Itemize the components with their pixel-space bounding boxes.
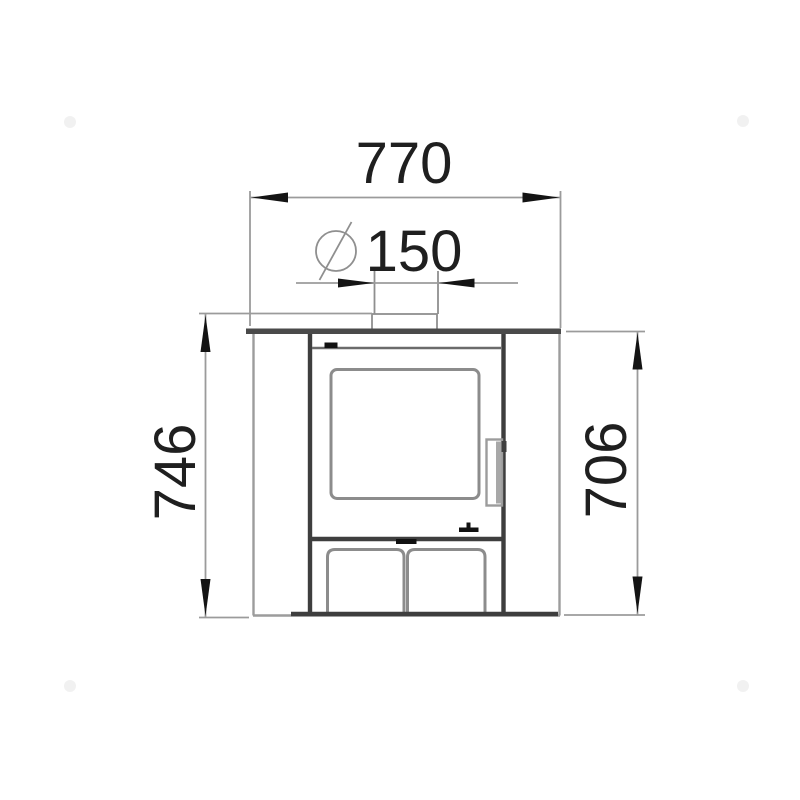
door-latch-stub: [467, 523, 471, 529]
dimension-flue-diameter: 150: [296, 219, 518, 314]
scan-artifact: [737, 680, 749, 692]
arrowhead-up-icon: [633, 333, 643, 370]
door-glass-window: [331, 370, 479, 499]
top-plate: [246, 329, 561, 335]
air-control-lever: [325, 343, 338, 349]
base-panel-right: [408, 550, 486, 614]
dimension-label-746: 746: [143, 424, 208, 521]
drawing-canvas: 770 150 746 706: [0, 0, 800, 800]
door-bottom-latch: [396, 539, 417, 544]
dimension-label-706: 706: [574, 422, 639, 519]
flue-collar: [372, 314, 437, 330]
dimension-label-150: 150: [366, 219, 463, 284]
diameter-icon: [316, 222, 356, 280]
stove-body: [246, 314, 561, 616]
arrowhead-up-icon: [201, 315, 211, 352]
dimension-body-height: 706: [564, 332, 645, 616]
door-handle-shade: [496, 442, 502, 504]
arrowhead-down-icon: [633, 577, 643, 614]
scan-artifact: [64, 680, 76, 692]
base-panel-left: [328, 550, 405, 614]
door-latch-mark: [459, 528, 479, 533]
door-handle-mount: [502, 441, 507, 452]
arrowhead-right-icon: [523, 193, 560, 203]
stove-dimension-drawing: 770 150 746 706: [0, 0, 800, 800]
dimension-label-770: 770: [356, 131, 453, 196]
scan-artifact: [64, 116, 76, 128]
scan-artifact: [737, 115, 749, 127]
arrowhead-left-icon: [251, 193, 288, 203]
arrowhead-down-icon: [201, 579, 211, 616]
